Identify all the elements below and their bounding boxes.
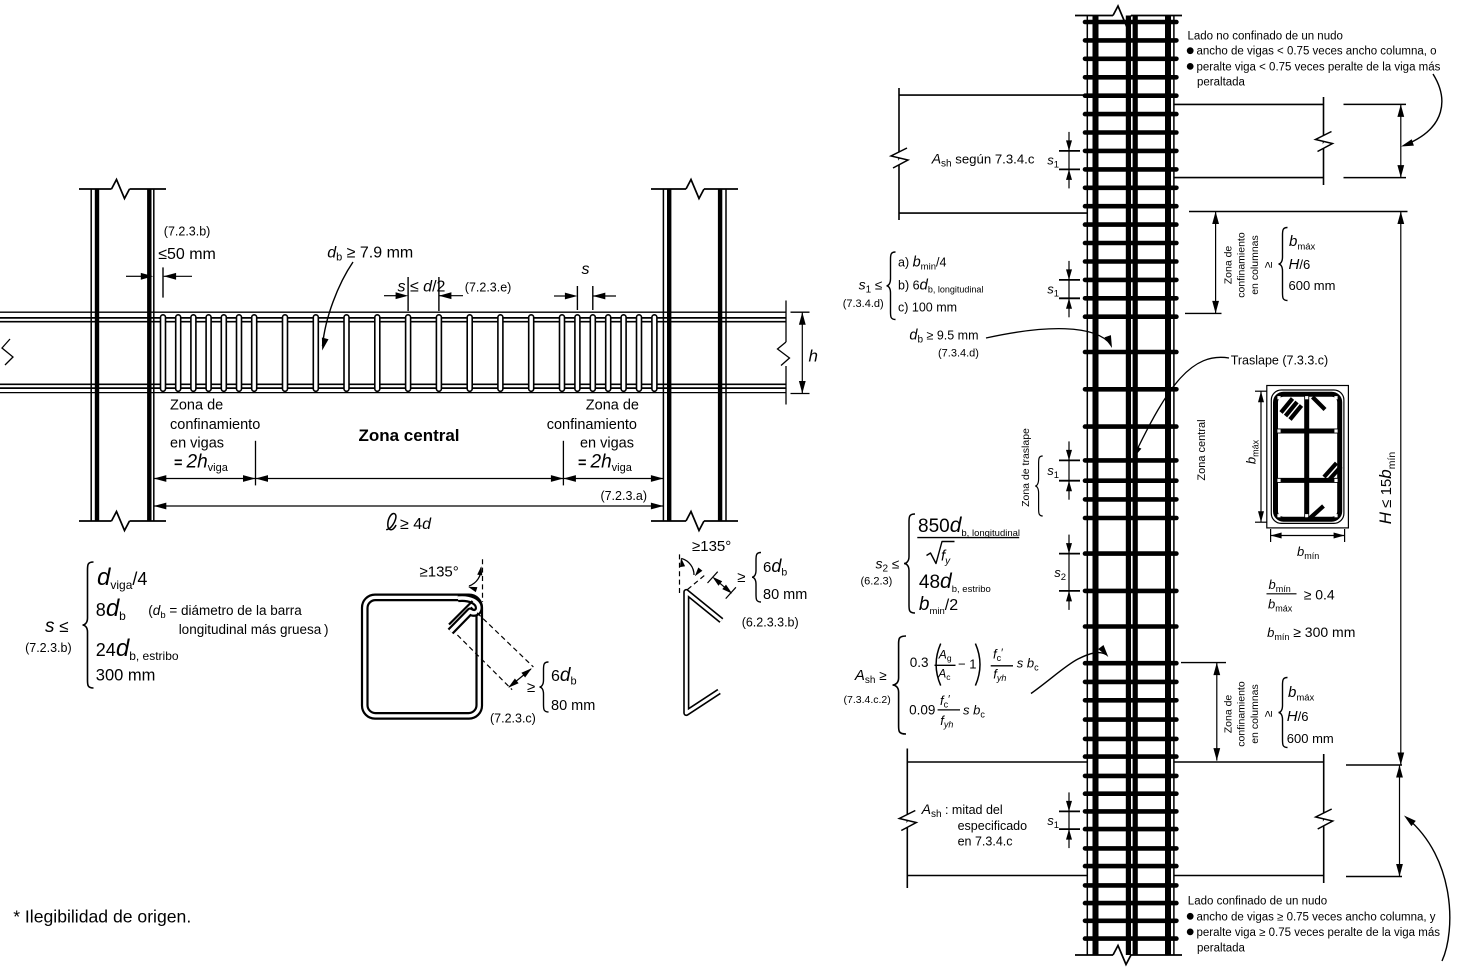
svg-text:* Ilegibilidad de origen.: * Ilegibilidad de origen. [13,907,191,927]
svg-text:(7.3.4.d): (7.3.4.d) [843,298,884,310]
svg-text:(6.2.3.3.b): (6.2.3.3.b) [742,616,799,630]
svg-text:Zona de: Zona de [586,398,639,414]
svg-text:≥135°: ≥135° [692,538,731,555]
svg-text:(7.3.4.c.2): (7.3.4.c.2) [844,694,891,706]
svg-text:≥: ≥ [1261,710,1275,717]
svg-text:en columnas: en columnas [1249,684,1261,744]
svg-text:en vigas: en vigas [170,436,224,452]
svg-text:− 1: − 1 [958,657,976,672]
svg-text:≥: ≥ [737,569,745,586]
svg-text:≤50 mm: ≤50 mm [158,246,216,263]
svg-text:en 7.3.4.c: en 7.3.4.c [958,835,1013,849]
svg-text:especificado: especificado [958,819,1028,833]
svg-text:300 mm: 300 mm [96,667,156,685]
svg-text:confinamiento: confinamiento [547,417,637,433]
svg-text:600 mm: 600 mm [1287,731,1334,746]
svg-text:80 mm: 80 mm [551,698,595,714]
svg-text:(7.2.3.b): (7.2.3.b) [25,641,72,655]
svg-text:ancho de vigas < 0.75 veces an: ancho de vigas < 0.75 veces ancho column… [1197,46,1437,58]
svg-text:peralte viga < 0.75 veces pera: peralte viga < 0.75 veces peralte de la … [1197,61,1441,73]
svg-text:s: s [582,261,590,278]
svg-text:Traslape (7.3.3.c): Traslape (7.3.3.c) [1231,354,1329,368]
svg-text:confinamiento: confinamiento [170,417,260,433]
svg-text:(7.2.3.c): (7.2.3.c) [490,712,536,726]
svg-text:≥ 4d: ≥ 4d [400,516,432,533]
svg-text:Lado no confinado de un nudo: Lado no confinado de un nudo [1188,30,1343,42]
svg-text:longitudinal más gruesa ): longitudinal más gruesa ) [179,622,329,637]
svg-text:ancho de vigas ≥ 0.75 veces an: ancho de vigas ≥ 0.75 veces ancho column… [1197,911,1436,923]
svg-text:Zona central: Zona central [358,426,459,445]
svg-text:0.09: 0.09 [909,703,935,718]
svg-text:confinamiento: confinamiento [1236,681,1248,747]
svg-text:≥: ≥ [1261,261,1275,268]
svg-text:H/6: H/6 [1289,256,1311,273]
svg-text:≥ 0.4: ≥ 0.4 [1304,587,1335,603]
svg-text:≥135°: ≥135° [420,564,459,581]
svg-text:≥: ≥ [527,679,535,696]
svg-text:peraltada: peraltada [1197,77,1246,89]
svg-text:H/6: H/6 [1287,708,1309,725]
svg-text:600 mm: 600 mm [1289,278,1336,293]
svg-text:(7.2.3.b): (7.2.3.b) [164,225,211,239]
svg-text:(7.3.4.d): (7.3.4.d) [938,348,979,360]
svg-text:Zona de: Zona de [1223,695,1235,734]
svg-text:s ≤: s ≤ [45,616,69,637]
svg-text:en columnas: en columnas [1249,235,1261,295]
svg-text:(6.2.3): (6.2.3) [861,576,893,588]
svg-text:(7.2.3.a): (7.2.3.a) [600,489,647,503]
svg-text:peraltada: peraltada [1197,942,1246,954]
svg-text:0.3: 0.3 [910,655,929,670]
svg-text:h: h [809,347,818,366]
svg-text:c) 100 mm: c) 100 mm [898,301,957,315]
svg-text:Zona central: Zona central [1196,419,1208,480]
svg-text:(7.2.3.e): (7.2.3.e) [465,281,512,295]
svg-text:Zona de traslape: Zona de traslape [1020,428,1032,507]
svg-text:80 mm: 80 mm [763,587,807,603]
svg-text:confinamiento: confinamiento [1236,232,1248,298]
svg-text:en vigas: en vigas [580,436,634,452]
svg-text:Zona de: Zona de [1223,246,1235,285]
svg-text:Lado confinado de un nudo: Lado confinado de un nudo [1188,896,1327,908]
svg-text:Zona de: Zona de [170,398,223,414]
svg-text:peralte viga ≥ 0.75 veces pera: peralte viga ≥ 0.75 veces peralte de la … [1197,927,1441,939]
